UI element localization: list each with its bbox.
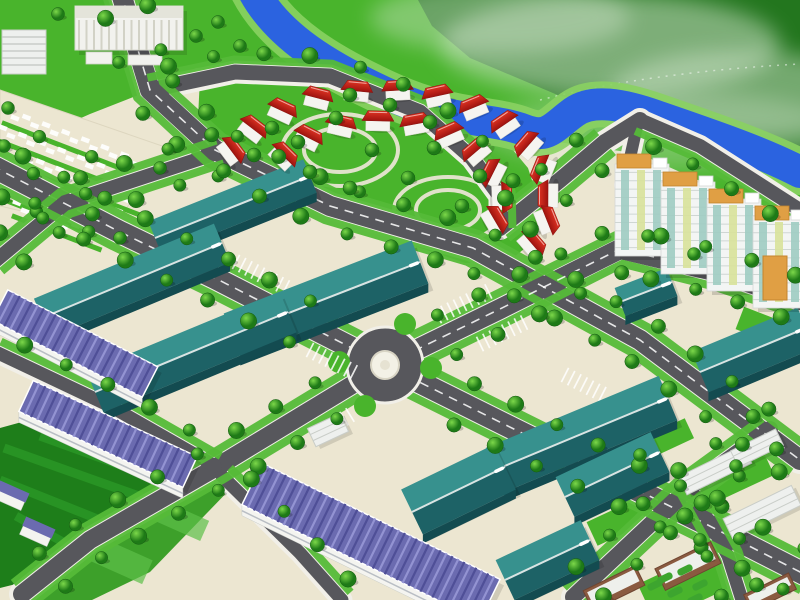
tree-canopy: [113, 56, 125, 68]
tree-canopy: [690, 283, 702, 295]
roof-vent: [663, 283, 670, 286]
villa-wall: [366, 121, 390, 132]
tree-canopy: [661, 381, 677, 397]
tower-roof-penthouse: [617, 154, 651, 168]
tree-canopy: [130, 528, 146, 544]
tree-canopy: [221, 252, 235, 266]
tree-canopy: [733, 532, 745, 544]
roundabout-island: [394, 313, 416, 335]
tree-canopy: [261, 272, 277, 288]
tree-canopy: [139, 0, 155, 14]
tree-canopy: [204, 128, 218, 142]
tree-canopy: [591, 438, 605, 452]
tree-canopy: [570, 479, 584, 493]
tree-canopy: [37, 212, 49, 224]
tree-canopy: [595, 163, 609, 177]
tree-canopy: [777, 583, 789, 595]
tree-canopy: [603, 529, 615, 541]
tree-canopy: [243, 471, 259, 487]
tree-canopy: [160, 274, 172, 286]
tree-canopy: [240, 313, 256, 329]
tree-canopy: [745, 253, 759, 267]
tree-canopy: [755, 519, 771, 535]
tree-canopy: [160, 58, 176, 74]
tree-canopy: [32, 546, 46, 560]
tower-glass-strip: [621, 170, 629, 250]
tree-canopy: [58, 171, 70, 183]
tree-canopy: [85, 150, 98, 163]
tree-canopy: [365, 143, 379, 157]
tree-canopy: [247, 148, 261, 162]
tree-canopy: [136, 106, 150, 120]
tree-canopy: [653, 228, 669, 244]
tree-canopy: [340, 571, 356, 587]
roof-vent: [213, 244, 219, 247]
tree-canopy: [497, 190, 513, 206]
tree-canopy: [290, 435, 304, 449]
tower-roof-unit: [791, 210, 800, 220]
tree-canopy: [29, 197, 41, 209]
tree-canopy: [384, 240, 398, 254]
tree-canopy: [773, 309, 789, 325]
roundabout-dot: [380, 360, 390, 370]
tree-canopy: [265, 121, 279, 135]
annex-building: [128, 55, 162, 65]
tree-canopy: [560, 194, 572, 206]
tree-canopy: [674, 480, 686, 492]
tree-canopy: [631, 558, 643, 570]
tree-canopy: [17, 337, 33, 353]
tree-canopy: [734, 560, 750, 576]
tree-canopy: [611, 498, 627, 514]
tree-canopy: [467, 377, 481, 391]
tree-canopy: [730, 460, 743, 473]
roof-vent: [659, 399, 665, 402]
tree-canopy: [688, 248, 701, 261]
tree-canopy: [171, 506, 185, 520]
tree-canopy: [569, 133, 583, 147]
tree-canopy: [109, 492, 125, 508]
tree-canopy: [150, 470, 164, 484]
tree-canopy: [53, 226, 65, 238]
tree-canopy: [651, 319, 665, 333]
tree-canopy: [512, 266, 528, 282]
tree-canopy: [128, 191, 144, 207]
tree-canopy: [677, 508, 693, 524]
tree-canopy: [97, 10, 113, 26]
tree-canopy: [769, 442, 783, 456]
tree-canopy: [309, 377, 321, 389]
tree-canopy: [663, 526, 677, 540]
tree-canopy: [154, 162, 167, 175]
annex-building: [86, 52, 112, 64]
tree-canopy: [234, 40, 247, 53]
tree-canopy: [58, 579, 72, 593]
tree-canopy: [694, 534, 707, 547]
tree-canopy: [283, 336, 295, 348]
yellow-midrise: [763, 256, 787, 300]
tree-canopy: [257, 47, 271, 61]
tree-canopy: [670, 462, 686, 478]
tree-canopy: [116, 155, 132, 171]
tree-canopy: [137, 211, 153, 227]
tree-canopy: [574, 287, 586, 299]
tree-canopy: [726, 375, 738, 387]
tower-roof-unit: [745, 193, 759, 203]
tree-canopy: [341, 228, 353, 240]
tree-canopy: [198, 104, 214, 120]
tree-canopy: [427, 141, 441, 155]
tree-canopy: [278, 505, 290, 517]
tree-canopy: [568, 271, 584, 287]
tree-canopy: [724, 182, 738, 196]
tree-canopy: [472, 288, 486, 302]
tower-glass-strip: [729, 205, 737, 285]
tree-canopy: [531, 306, 547, 322]
tree-canopy: [228, 422, 244, 438]
tree-canopy: [749, 578, 763, 592]
tree-canopy: [491, 327, 505, 341]
tree-canopy: [155, 44, 167, 56]
tree-canopy: [447, 418, 461, 432]
tree-canopy: [450, 348, 462, 360]
tree-canopy: [60, 359, 72, 371]
tree-canopy: [231, 130, 243, 142]
tree-canopy: [15, 148, 31, 164]
tree-canopy: [473, 169, 487, 183]
roundabout-island: [354, 395, 376, 417]
tree-canopy: [476, 135, 488, 147]
tree-canopy: [95, 551, 107, 563]
tree-canopy: [269, 399, 283, 413]
tree-canopy: [568, 558, 584, 574]
tree-canopy: [331, 413, 343, 425]
tree-canopy: [303, 165, 317, 179]
tree-canopy: [216, 164, 230, 178]
tree-canopy: [427, 252, 443, 268]
tree-canopy: [383, 98, 397, 112]
tree-canopy: [595, 226, 609, 240]
tree-canopy: [304, 295, 316, 307]
tree-canopy: [212, 16, 225, 29]
tower-glass-strip: [745, 205, 753, 285]
tree-canopy: [76, 232, 90, 246]
tree-canopy: [735, 437, 749, 451]
exhibition-hall: [75, 6, 187, 55]
tree-canopy: [212, 484, 224, 496]
tree-canopy: [79, 187, 92, 200]
tree-canopy: [343, 181, 357, 195]
tower-glass-strip: [791, 222, 799, 302]
tree-canopy: [710, 437, 722, 449]
tree-canopy: [530, 460, 542, 472]
tree-canopy: [16, 254, 32, 270]
tree-canopy: [52, 8, 65, 21]
master-plan-image: [0, 0, 800, 600]
tree-canopy: [0, 140, 11, 153]
tree-canopy: [440, 103, 456, 119]
tree-canopy: [507, 396, 523, 412]
tree-canopy: [687, 158, 699, 170]
tree-canopy: [310, 537, 324, 551]
tree-canopy: [762, 205, 778, 221]
tree-canopy: [69, 519, 81, 531]
tree-canopy: [85, 207, 99, 221]
tree-canopy: [293, 208, 309, 224]
tower-glass-strip: [713, 205, 721, 285]
tree-canopy: [181, 233, 193, 245]
tree-canopy: [645, 138, 661, 154]
tree-canopy: [183, 424, 195, 436]
tree-canopy: [141, 399, 157, 415]
tree-canopy: [610, 295, 622, 307]
tree-canopy: [699, 411, 711, 423]
tree-canopy: [114, 232, 127, 245]
tree-canopy: [506, 174, 520, 188]
tree-canopy: [401, 171, 415, 185]
tree-canopy: [535, 163, 547, 175]
tree-canopy: [166, 74, 180, 88]
tree-canopy: [643, 271, 659, 287]
tree-canopy: [191, 448, 203, 460]
tree-canopy: [636, 496, 650, 510]
tree-canopy: [98, 191, 112, 205]
tree-canopy: [354, 61, 366, 73]
tree-canopy: [701, 550, 713, 562]
tree-canopy: [522, 221, 538, 237]
tree-canopy: [455, 199, 469, 213]
tree-canopy: [625, 354, 639, 368]
tree-canopy: [507, 289, 521, 303]
tree-canopy: [762, 402, 776, 416]
tree-canopy: [440, 209, 456, 225]
tower-roof-penthouse: [663, 172, 697, 186]
tree-canopy: [423, 115, 437, 129]
villa-wall: [548, 184, 558, 208]
tree-canopy: [200, 293, 214, 307]
tree-canopy: [396, 77, 410, 91]
tree-canopy: [329, 111, 343, 125]
tree-canopy: [468, 267, 480, 279]
tree-canopy: [27, 167, 40, 180]
tree-canopy: [33, 130, 46, 143]
tree-canopy: [271, 149, 285, 163]
tree-canopy: [396, 197, 410, 211]
tree-canopy: [746, 409, 760, 423]
tree-canopy: [634, 449, 647, 462]
tree-canopy: [2, 102, 15, 115]
tree-canopy: [252, 189, 266, 203]
tower-glass-strip: [667, 188, 675, 268]
office-block: [2, 30, 46, 74]
tree-canopy: [73, 171, 87, 185]
tree-canopy: [615, 266, 629, 280]
tree-canopy: [528, 250, 542, 264]
tree-canopy: [555, 248, 567, 260]
tree-canopy: [687, 346, 703, 362]
roof-vent: [411, 263, 418, 266]
tree-canopy: [642, 230, 655, 243]
tree-canopy: [730, 295, 744, 309]
tree-canopy: [487, 437, 503, 453]
tree-canopy: [694, 495, 710, 511]
tree-canopy: [302, 47, 318, 63]
hall-roof-band: [75, 6, 183, 18]
tree-canopy: [207, 50, 219, 62]
tree-canopy: [700, 240, 712, 252]
tower-roof-unit: [699, 176, 713, 186]
tree-canopy: [431, 309, 443, 321]
tree-canopy: [343, 88, 357, 102]
scene-svg: [0, 0, 800, 600]
tree-canopy: [489, 229, 501, 241]
roundabout-island: [420, 357, 442, 379]
tree-canopy: [190, 30, 203, 43]
tower-roof-unit: [653, 158, 667, 168]
roof-vent: [279, 313, 285, 316]
tree-canopy: [101, 377, 115, 391]
tree-canopy: [117, 252, 133, 268]
tree-canopy: [291, 135, 305, 149]
tree-canopy: [551, 418, 563, 430]
tree-canopy: [709, 490, 725, 506]
tree-canopy: [589, 334, 601, 346]
tree-canopy: [174, 179, 186, 191]
tree-canopy: [162, 143, 174, 155]
tree-canopy: [771, 464, 787, 480]
